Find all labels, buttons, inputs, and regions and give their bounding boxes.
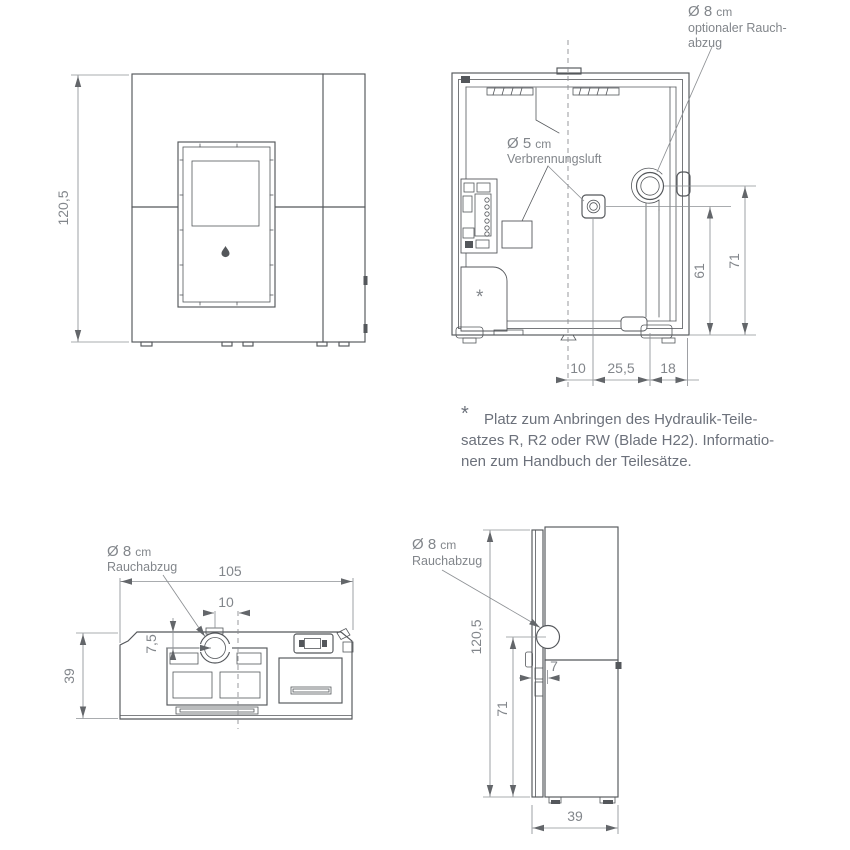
top-width-dimension: 105 [120, 563, 353, 643]
side-view: 120,5 71 7 39 Ø 8cm Rauchabzug [412, 527, 622, 834]
rear-air-inlet-label: Ø 5cm Verbrennungsluft [507, 135, 602, 201]
svg-text:Ø 8cm: Ø 8cm [412, 536, 456, 553]
front-door [178, 142, 275, 307]
side-depth-dim-label: 39 [567, 808, 583, 824]
svg-text:Ø 8cm: Ø 8cm [688, 3, 732, 20]
rear-outlet-to-edge-dim-label: 18 [660, 360, 676, 376]
svg-text:optionaler Rauch-: optionaler Rauch- [688, 21, 787, 35]
svg-text:Ø 8cm: Ø 8cm [107, 543, 151, 560]
rear-hopper-contour [536, 88, 559, 133]
rear-smoke-outlet-label: Ø 8cm optionaler Rauch- abzug [657, 3, 787, 172]
top-depth-dim-label: 39 [61, 668, 77, 684]
top-depth-dimension: 39 [61, 633, 118, 719]
svg-text:Rauchabzug: Rauchabzug [107, 560, 177, 574]
side-smoke-outlet-label: Ø 8cm Rauchabzug [412, 536, 540, 628]
rear-air-to-outlet-dim-label: 25,5 [607, 360, 634, 376]
svg-text:abzug: abzug [688, 36, 722, 50]
top-offset-dimension: 10 [203, 594, 250, 628]
front-view: 120,5 [55, 74, 368, 346]
svg-text:Rauchabzug: Rauchabzug [412, 554, 482, 568]
side-channel-dim-label: 7 [550, 658, 558, 674]
side-feet [549, 797, 615, 804]
front-height-dim-label: 120,5 [55, 190, 71, 225]
rear-electrical-panel [461, 179, 497, 253]
rear-smoke-outlet-fan [621, 168, 664, 331]
note-line-2: satzes R, R2 oder RW (Blade H22). Inform… [461, 432, 774, 449]
rear-air-inlet [582, 195, 605, 218]
side-latch [616, 662, 622, 669]
hydraulic-space-marker: * [476, 287, 484, 308]
front-hinge-upper [364, 276, 368, 285]
rear-wall-bracket [677, 172, 690, 196]
front-hinge-lower [364, 324, 368, 333]
top-pellet-lid [279, 658, 342, 703]
rear-air-height-dim-label: 61 [691, 263, 707, 279]
rear-corner-fitting [461, 76, 470, 83]
rear-auger-box [502, 221, 532, 248]
top-offset-dim-label: 10 [218, 594, 234, 610]
front-feet [141, 342, 349, 346]
rear-view: * [452, 3, 787, 391]
side-depth-dimension: 39 [532, 805, 618, 834]
rear-hydraulic-space [461, 267, 507, 331]
side-outlet-height-dim-label: 71 [494, 701, 510, 717]
side-smoke-channel [532, 530, 543, 797]
top-view: 105 10 7,5 39 Ø 8cm Rauch [61, 543, 353, 729]
note-line-3: nen zum Handbuch der Teilesätze. [461, 453, 692, 470]
front-height-dimension: 120,5 [55, 75, 129, 342]
hydraulic-note: * Platz zum Anbringen des Hydraulik-Teil… [461, 403, 774, 470]
top-outlet-depth-dim-label: 7,5 [143, 634, 159, 654]
side-channel-details [535, 668, 543, 696]
svg-text:Ø 5cm: Ø 5cm [507, 135, 551, 152]
top-smoke-outlet [199, 628, 232, 663]
technical-drawing-page: 120,5 [0, 0, 850, 850]
side-height-dim-label: 120,5 [468, 619, 484, 654]
top-display-unit [294, 634, 333, 653]
top-width-dim-label: 105 [218, 563, 242, 579]
stove-dimension-drawing: 120,5 [0, 0, 850, 850]
top-smoke-outlet-label: Ø 8cm Rauchabzug [107, 543, 205, 637]
rear-bottom-dimensions: 10 25,5 18 [556, 219, 699, 386]
rear-offset-dim-label: 10 [570, 360, 586, 376]
side-height-dimension: 120,5 [468, 530, 530, 797]
note-line-1: Platz zum Anbringen des Hydraulik-Teile- [484, 411, 757, 428]
rear-outlet-height-dim-label: 71 [726, 253, 742, 269]
svg-text:Verbrennungsluft: Verbrennungsluft [507, 152, 602, 166]
rear-right-dimensions: 61 71 [606, 186, 756, 335]
rear-vent-slots [487, 88, 619, 95]
rear-chamber-contour [522, 166, 548, 221]
note-marker: * [461, 403, 469, 425]
top-front-slot [176, 707, 258, 714]
side-outlet-height-dimension: 71 [494, 637, 546, 797]
